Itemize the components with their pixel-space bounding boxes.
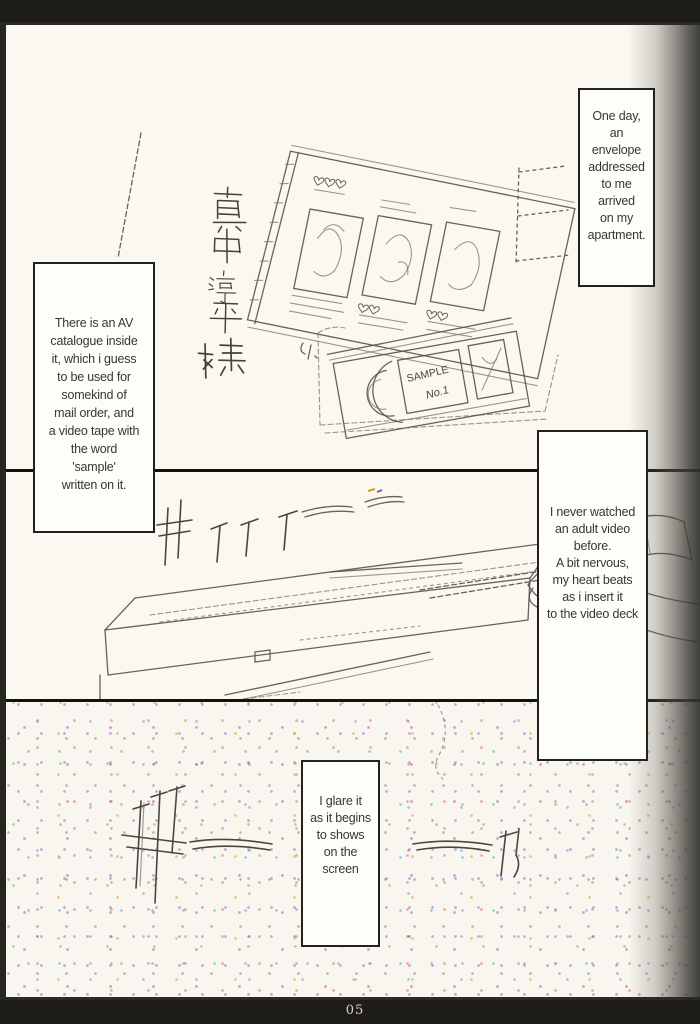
caption-one-day: One day, an envelope addressed to me arr… <box>578 88 655 287</box>
cable-squiggle <box>436 705 445 779</box>
vhs-label-number: No.1 <box>425 384 451 402</box>
motion-dashes <box>302 497 565 598</box>
page-number: 05 <box>346 1003 365 1018</box>
caption-never-watched: I never watched an adult video before. A… <box>537 430 648 761</box>
sound-effect-marks <box>157 500 297 565</box>
av-catalogue-sketch <box>244 136 579 393</box>
scan-bottom-bar: 05 <box>0 997 700 1024</box>
manga-page-scan: SAMPLE No.1 <box>0 0 700 1024</box>
vhs-label-title: SAMPLE <box>406 364 450 385</box>
video-deck-sketch <box>100 542 555 700</box>
caption-glare: I glare it as it begins to shows on the … <box>301 760 380 947</box>
color-fleck <box>368 489 382 492</box>
envelope-sketch <box>318 327 558 433</box>
scan-top-bar <box>0 0 700 25</box>
envelope-address-handwriting <box>198 187 246 379</box>
scan-left-edge <box>0 25 6 997</box>
date-scribble <box>301 343 317 359</box>
caption-av-catalogue: There is an AV catalogue inside it, whic… <box>33 262 155 533</box>
